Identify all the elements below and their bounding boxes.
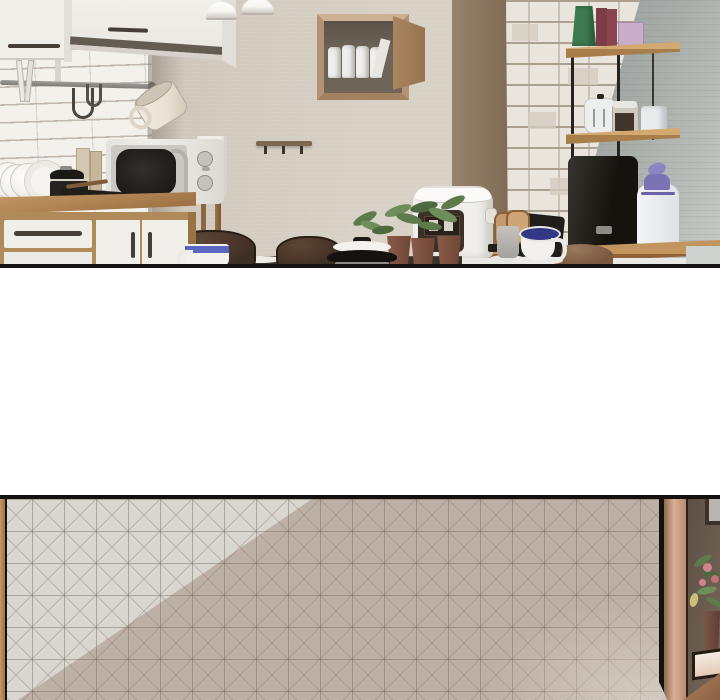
jar-lid [612, 101, 637, 108]
drawer-handle [14, 231, 82, 236]
gray-cup [497, 226, 519, 258]
pot-lid-handle [60, 166, 72, 170]
microwave-knob [197, 151, 213, 167]
maroon-book [596, 8, 607, 46]
jug-band [641, 192, 675, 195]
pink-flower [711, 575, 719, 583]
lower-drawer-face [4, 252, 92, 264]
jar-slot [593, 109, 595, 127]
wall-hook [282, 146, 285, 154]
door-handle [148, 232, 152, 258]
kettle-knob [597, 94, 604, 99]
panel-gutter [0, 268, 720, 495]
cabinet-divider [64, 0, 72, 62]
jar-contents [615, 113, 634, 131]
box-shelf-side [393, 16, 425, 90]
cabinet-handle [8, 44, 60, 48]
drawer [4, 220, 92, 248]
plant-pot [703, 611, 720, 651]
mug-handle [551, 238, 567, 261]
storage-jar [328, 47, 341, 78]
jug-lid [644, 174, 670, 190]
maroon-book [607, 9, 617, 46]
webtoon-strip [0, 0, 720, 700]
dining-chair [276, 236, 342, 268]
pink-flower [703, 563, 712, 572]
microwave-button [202, 167, 210, 171]
panel-tiled-wall [0, 495, 720, 700]
cutting-board [90, 151, 102, 196]
left-frame-sliver [0, 499, 7, 700]
cream-ledge [692, 648, 720, 681]
dispenser-spout [596, 226, 612, 234]
door-handle [131, 232, 135, 258]
s-hook [86, 84, 102, 107]
pink-flower [699, 579, 706, 586]
plant-pot [436, 236, 462, 266]
brick [528, 112, 556, 129]
brick [512, 24, 538, 41]
cabinet-door [96, 220, 140, 264]
storage-jar [356, 46, 369, 78]
pendant-lamp [241, 0, 274, 15]
storage-jar [342, 45, 355, 78]
water-purifier [568, 156, 638, 254]
wall-hook [264, 146, 267, 154]
green-book [572, 6, 596, 46]
doorway [659, 499, 720, 700]
upper-cabinet-left [0, 0, 64, 60]
jar-slot [603, 109, 605, 127]
microwave-knob [197, 175, 213, 191]
panel-kitchen-scene [0, 0, 720, 268]
wall-hook [300, 146, 303, 154]
pot-base [335, 262, 389, 265]
lower-cabinets [0, 212, 196, 264]
door-frame-plank [664, 499, 688, 700]
microwave-window [116, 149, 176, 195]
picture-frame [705, 499, 720, 525]
plant-pot [410, 238, 436, 266]
mug-handle [177, 250, 193, 268]
gray-appliance-panel [686, 246, 720, 267]
